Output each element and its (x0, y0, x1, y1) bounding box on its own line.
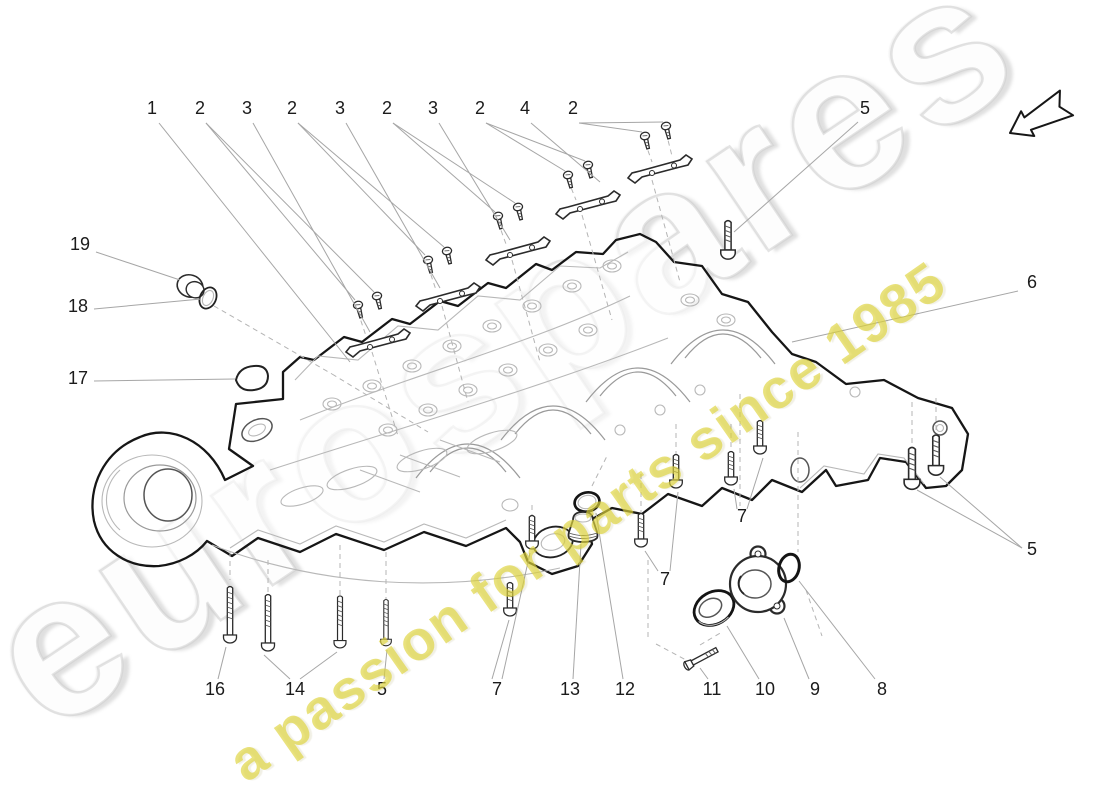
dashed-guide (656, 644, 686, 660)
callout-label-17: 17 (68, 368, 88, 388)
callout-label-6: 6 (1027, 272, 1037, 292)
screw-2b (442, 246, 455, 264)
leader-line-16 (218, 647, 226, 679)
callout-label-2: 2 (475, 98, 485, 118)
bolt-5-top (721, 221, 735, 260)
callout-label-5: 5 (860, 98, 870, 118)
direction-arrow-icon (1003, 91, 1073, 146)
callout-label-3: 3 (335, 98, 345, 118)
screw-1a (353, 300, 366, 318)
bolt-14b (334, 596, 346, 648)
bolt-5-bottom (381, 599, 392, 645)
screw-4a (563, 170, 576, 188)
leader-line-17 (94, 379, 235, 381)
leader-line-19 (96, 252, 180, 280)
leader-line-11 (700, 668, 708, 679)
leader-line-7 (492, 620, 509, 679)
oil-sump-exploded-diagram: 1232323242519181765777161451312111098 (0, 0, 1100, 800)
screw-1b (372, 291, 385, 309)
leader-line-6 (792, 291, 1018, 342)
callout-label-7: 7 (492, 679, 502, 699)
leader-line-2 (486, 123, 585, 161)
screw-2a (423, 255, 436, 273)
leader-line-5 (917, 490, 1022, 548)
leader-line-9 (784, 618, 809, 679)
callout-label-8: 8 (877, 679, 887, 699)
leader-line-5 (940, 477, 1022, 548)
leader-line-3 (253, 123, 370, 332)
callout-label-2: 2 (195, 98, 205, 118)
leader-line-2 (206, 123, 355, 300)
flange-9 (730, 547, 786, 614)
screw-3b (513, 202, 526, 220)
leader-line-2 (206, 123, 374, 292)
bolt-7b (504, 583, 517, 617)
leader-line-14 (264, 655, 290, 679)
callout-label-9: 9 (810, 679, 820, 699)
callout-label-1: 1 (147, 98, 157, 118)
leader-line-5 (734, 122, 858, 232)
bolt-7c (635, 514, 648, 548)
plug-13 (569, 512, 598, 542)
callout-label-12: 12 (615, 679, 635, 699)
bolt-14a (262, 595, 275, 652)
leader-line-3 (346, 123, 440, 288)
leader-line-2 (393, 123, 515, 203)
callout-label-3: 3 (242, 98, 252, 118)
leader-line-10 (727, 626, 759, 679)
callout-label-13: 13 (560, 679, 580, 699)
screw-5b (661, 121, 674, 139)
callout-label-10: 10 (755, 679, 775, 699)
callout-label-11: 11 (703, 679, 722, 699)
leader-line-2 (579, 123, 642, 132)
gasket-17 (236, 366, 268, 390)
callout-label-2: 2 (568, 98, 578, 118)
bolt-11 (682, 646, 719, 671)
leader-line-8 (799, 581, 875, 679)
leader-line-12 (596, 513, 623, 679)
callout-label-7: 7 (737, 506, 747, 526)
callout-label-3: 3 (428, 98, 438, 118)
bracket-3 (486, 237, 550, 265)
callout-label-5: 5 (377, 679, 387, 699)
dashed-guide (806, 590, 822, 636)
leader-line-7 (670, 492, 678, 571)
callout-label-7: 7 (660, 569, 670, 589)
callout-label-2: 2 (287, 98, 297, 118)
callout-label-5: 5 (1027, 539, 1037, 559)
leader-line-2 (579, 122, 663, 123)
parts-diagram-page: eurospares (0, 0, 1100, 800)
leader-line-1 (159, 123, 350, 362)
bolt-16 (224, 587, 237, 644)
callout-label-19: 19 (70, 234, 90, 254)
callout-label-14: 14 (285, 679, 305, 699)
screw-5a (640, 131, 653, 149)
leader-line-18 (94, 299, 201, 309)
leader-line-7 (502, 553, 530, 679)
leader-line-14 (300, 652, 337, 679)
leader-line-5 (384, 650, 387, 679)
bracket-5 (628, 155, 692, 183)
leader-line-2 (393, 123, 495, 212)
dashed-guide (700, 632, 722, 645)
bracket-4 (556, 191, 620, 219)
leader-line-3 (439, 123, 510, 240)
leader-line-2 (486, 123, 565, 171)
leader-line-7 (645, 551, 658, 571)
callout-label-2: 2 (382, 98, 392, 118)
callout-label-16: 16 (205, 679, 225, 699)
callout-label-4: 4 (520, 98, 530, 118)
callout-label-18: 18 (68, 296, 88, 316)
